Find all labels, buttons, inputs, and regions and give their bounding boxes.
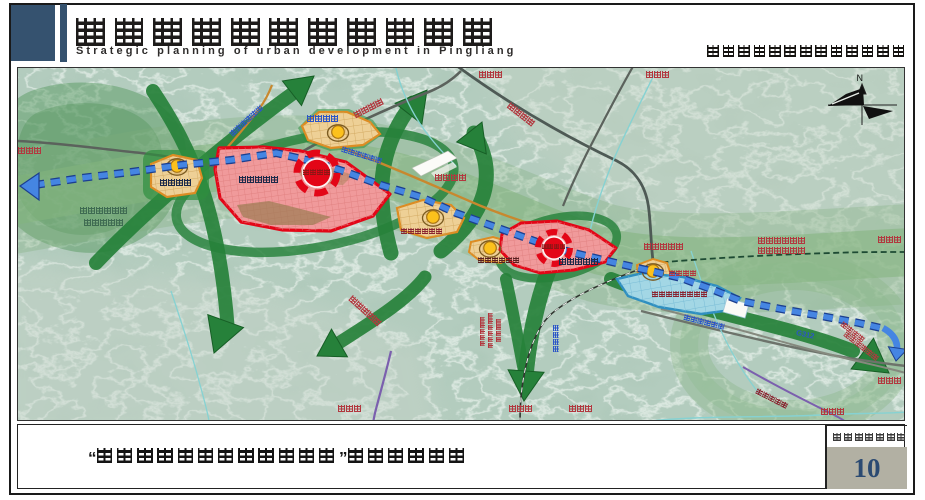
svg-text:N: N: [857, 73, 864, 83]
